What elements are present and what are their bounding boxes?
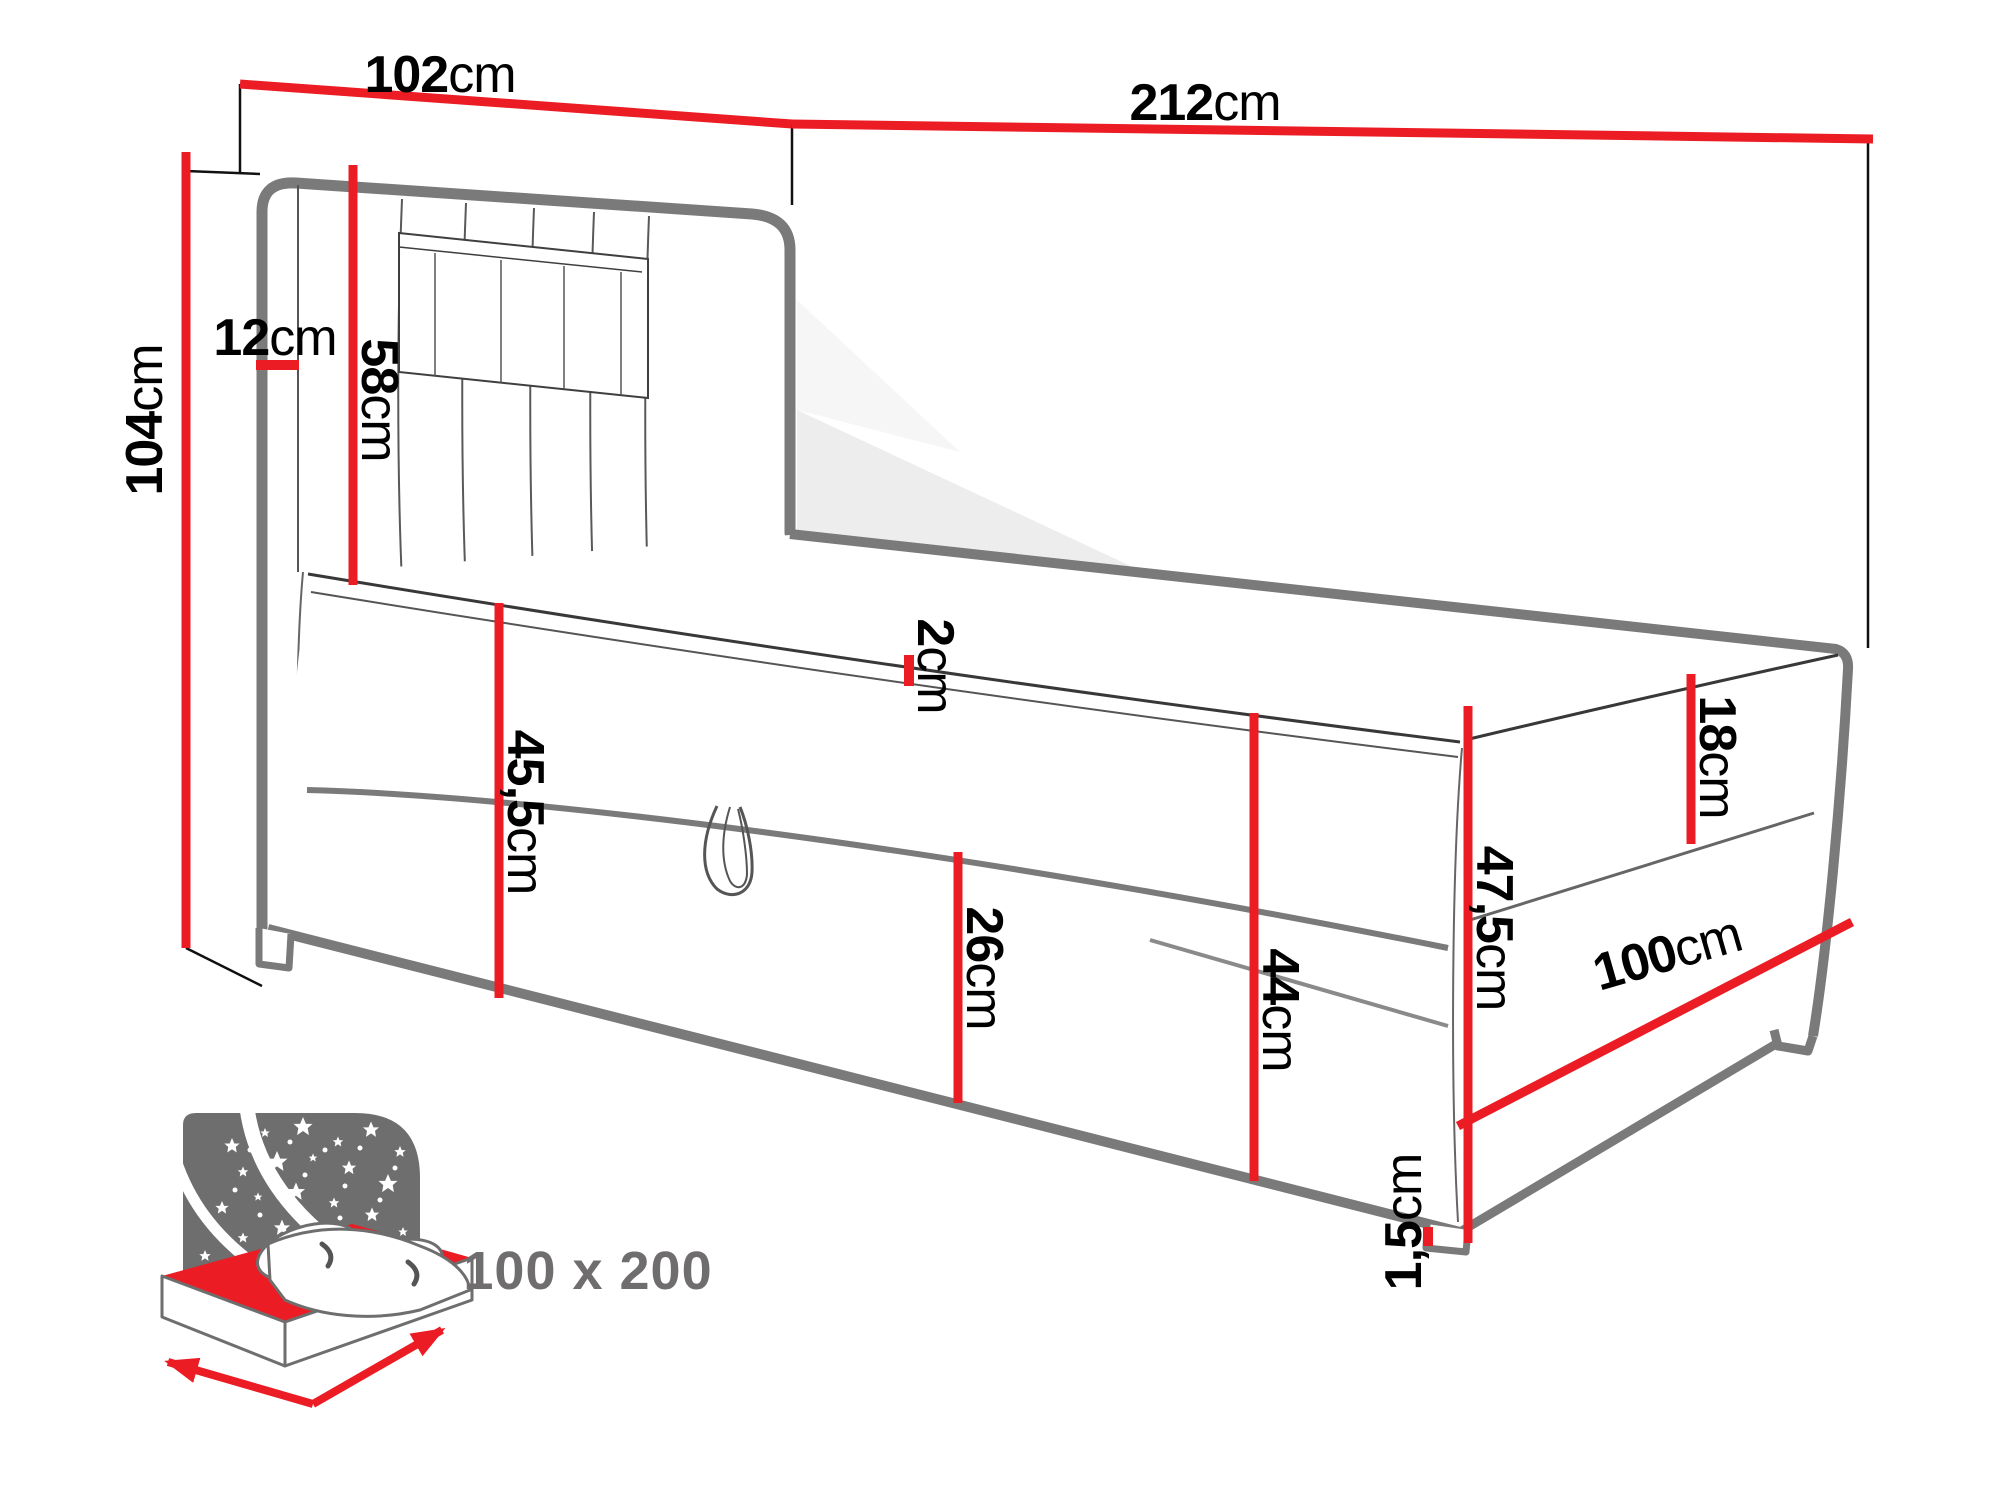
dim-label-44: 44cm xyxy=(1251,948,1309,1071)
dim-label-18: 18cm xyxy=(1688,695,1746,818)
bed-size-icon: 100 x 200 xyxy=(162,1108,713,1404)
dim-line-102 xyxy=(240,84,792,124)
dim-label-104: 104cm xyxy=(116,344,174,495)
icon-size-label: 100 x 200 xyxy=(463,1241,712,1301)
diagram-canvas: 102cm 212cm 104cm 12cm 58cm 2cm 45,5cm 2… xyxy=(0,0,2000,1500)
headboard-panel xyxy=(399,233,648,398)
left-foot xyxy=(259,928,291,968)
icon-duvet xyxy=(268,1229,470,1316)
wall-shadow xyxy=(797,300,1150,575)
dim-label-47-5: 47,5cm xyxy=(1465,846,1523,1011)
tick-104-top xyxy=(186,171,260,174)
dim-label-12: 12cm xyxy=(213,309,336,367)
dim-label-45-5: 45,5cm xyxy=(496,730,554,895)
dim-line-212 xyxy=(792,124,1873,139)
dim-label-26: 26cm xyxy=(955,906,1013,1029)
bed-dimension-diagram: 102cm 212cm 104cm 12cm 58cm 2cm 45,5cm 2… xyxy=(0,0,2000,1500)
tick-104-bottom xyxy=(186,948,262,986)
dim-label-102: 102cm xyxy=(364,46,515,104)
dim-label-1-5: 1,5cm xyxy=(1375,1154,1433,1291)
width-arrow-icon xyxy=(168,1362,313,1404)
dim-label-2: 2cm xyxy=(906,618,964,713)
dim-label-212: 212cm xyxy=(1129,74,1280,132)
dim-label-58: 58cm xyxy=(350,338,408,461)
